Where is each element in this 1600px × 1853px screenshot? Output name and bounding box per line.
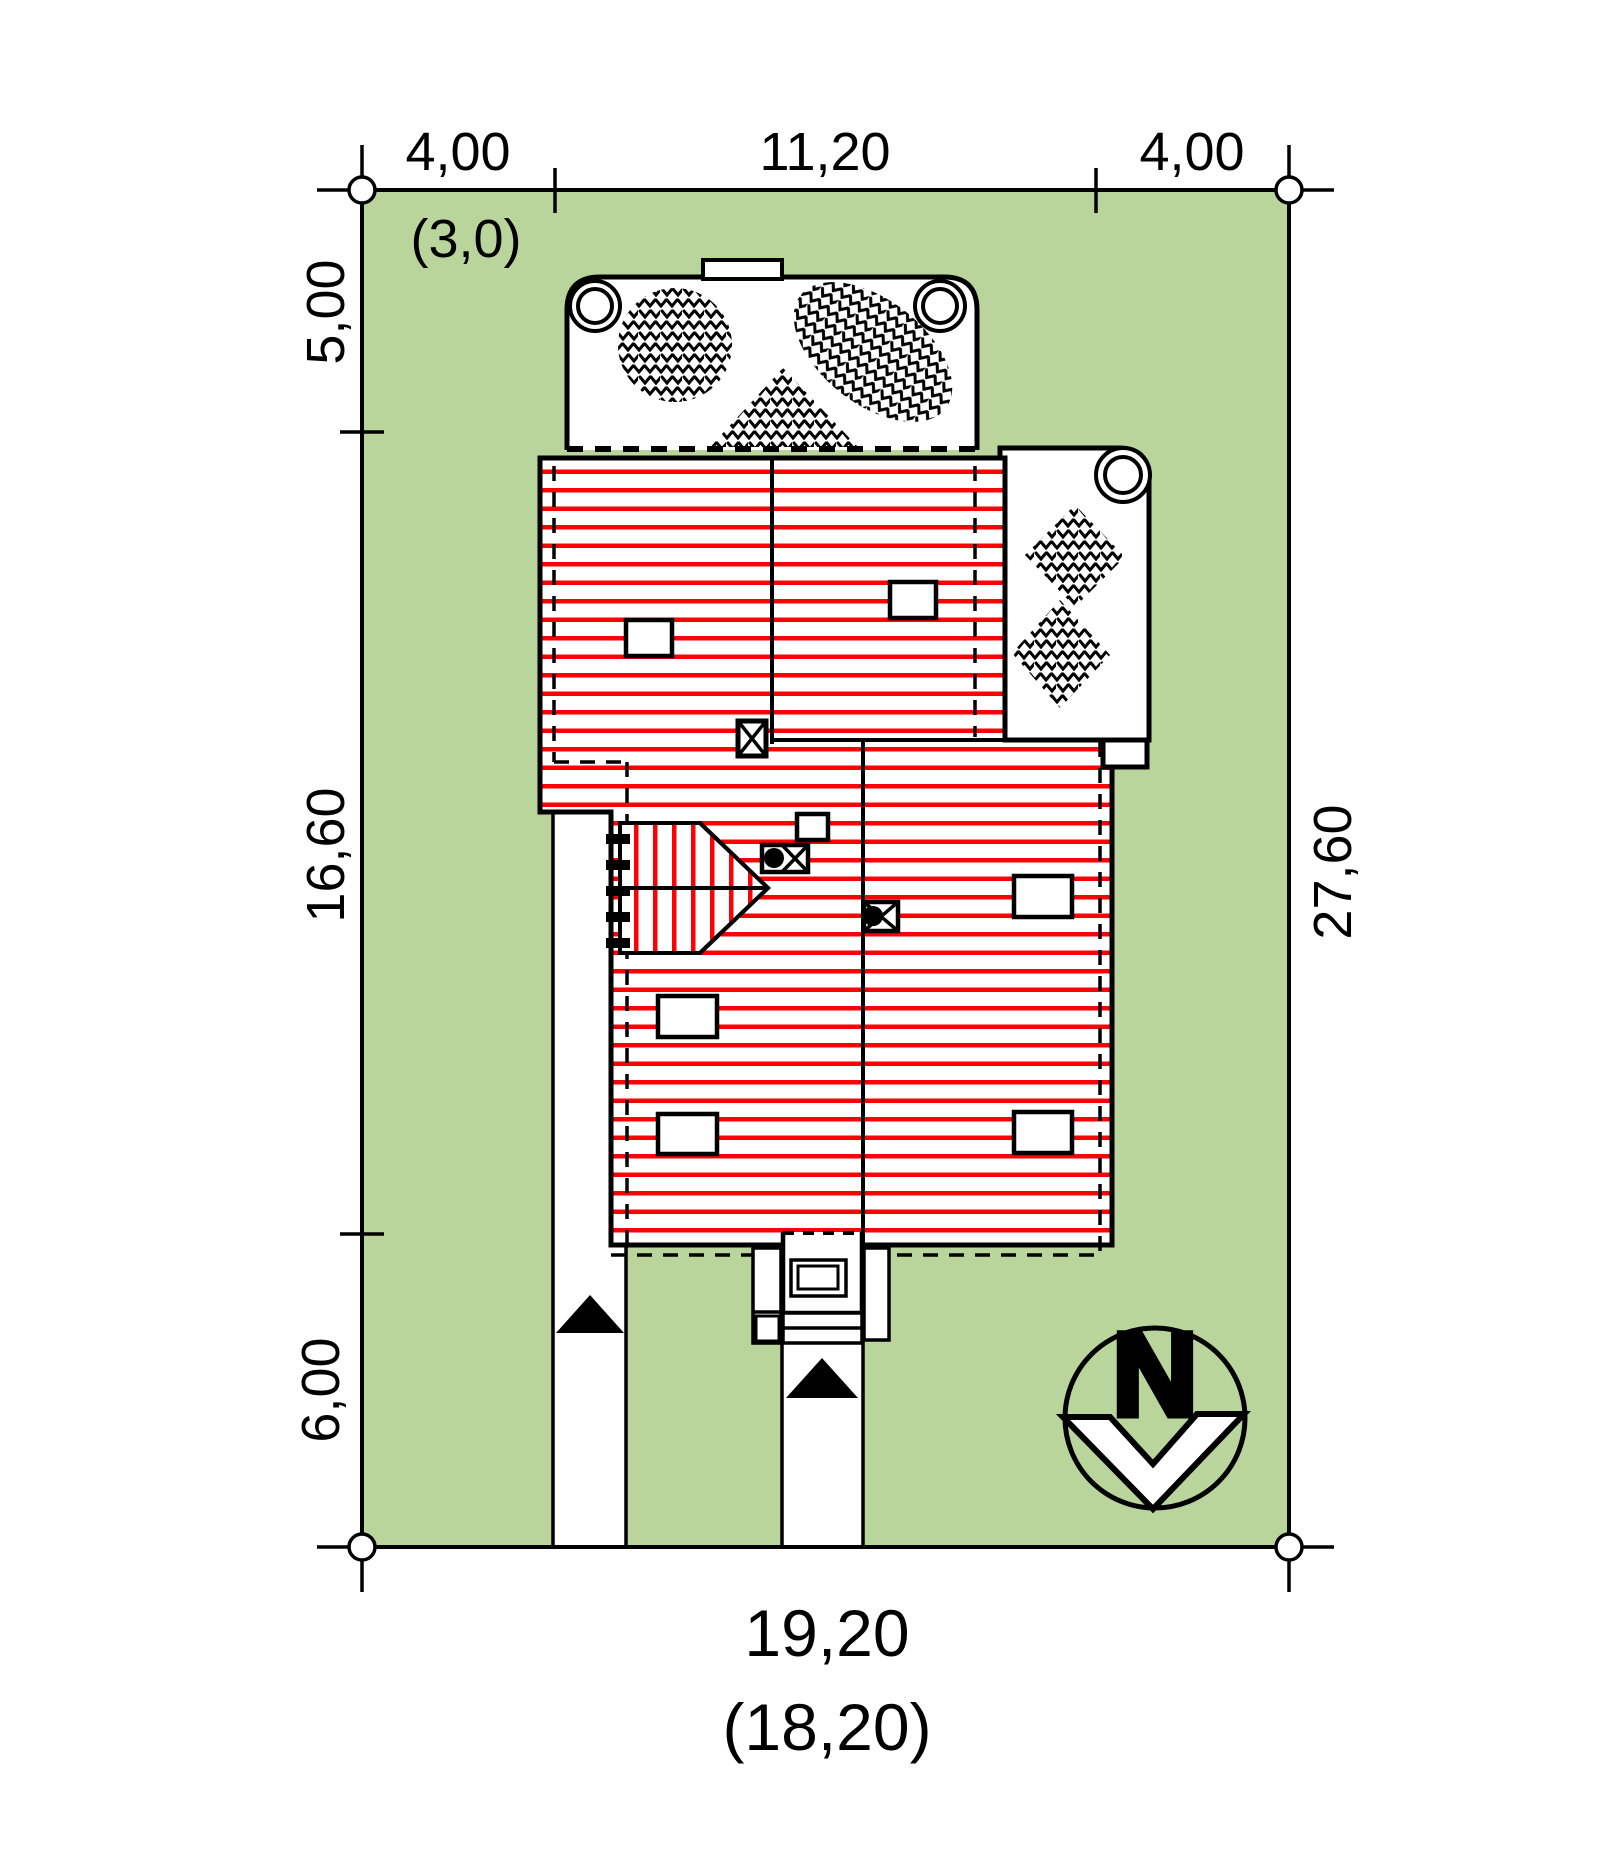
chimney: [626, 620, 672, 656]
dim-top-left: 4,00: [405, 122, 510, 182]
survey-point-icon: [1276, 177, 1302, 203]
site-plan-drawing: N 4,00 11,20 4,00 (3,0) 5,00 16,60 6,00 …: [0, 0, 1600, 1853]
dim-bottom-secondary: (18,20): [722, 1690, 931, 1764]
planter-icon: [915, 281, 965, 331]
site-plan-canvas: N 4,00 11,20 4,00 (3,0) 5,00 16,60 6,00 …: [0, 0, 1600, 1853]
dim-left-middle: 16,60: [296, 787, 356, 922]
dim-top-secondary: (3,0): [410, 209, 521, 269]
dim-bottom: 19,20: [744, 1596, 909, 1670]
dim-top-middle: 11,20: [759, 122, 890, 182]
chimney: [890, 582, 936, 618]
planter-icon: [570, 281, 620, 331]
chimney: [797, 814, 828, 840]
roof-hatch-window-icon: [863, 902, 898, 931]
side-patio: [1000, 448, 1150, 740]
dim-right: 27,60: [1303, 804, 1363, 939]
patio-step: [1103, 740, 1147, 767]
chimney: [658, 1114, 717, 1154]
chimney: [658, 996, 717, 1037]
entrance-porch: [753, 1232, 889, 1343]
survey-point-icon: [349, 177, 375, 203]
compass-north-label: N: [1112, 1309, 1197, 1441]
survey-point-icon: [1276, 1534, 1302, 1560]
chimney: [1014, 876, 1072, 917]
terrace-top-notch: [703, 260, 782, 279]
planter-icon: [1096, 448, 1150, 502]
dim-left-lower: 6,00: [291, 1337, 351, 1442]
roof-hatch-window-icon: [738, 721, 766, 756]
tree-hatch-icon: [618, 288, 732, 402]
survey-point-icon: [349, 1534, 375, 1560]
dim-left-upper: 5,00: [296, 259, 356, 364]
terrace: [567, 254, 978, 450]
dim-top-right: 4,00: [1139, 122, 1244, 182]
chimney: [1014, 1112, 1072, 1153]
roof-hatch-window-icon: [762, 845, 808, 872]
